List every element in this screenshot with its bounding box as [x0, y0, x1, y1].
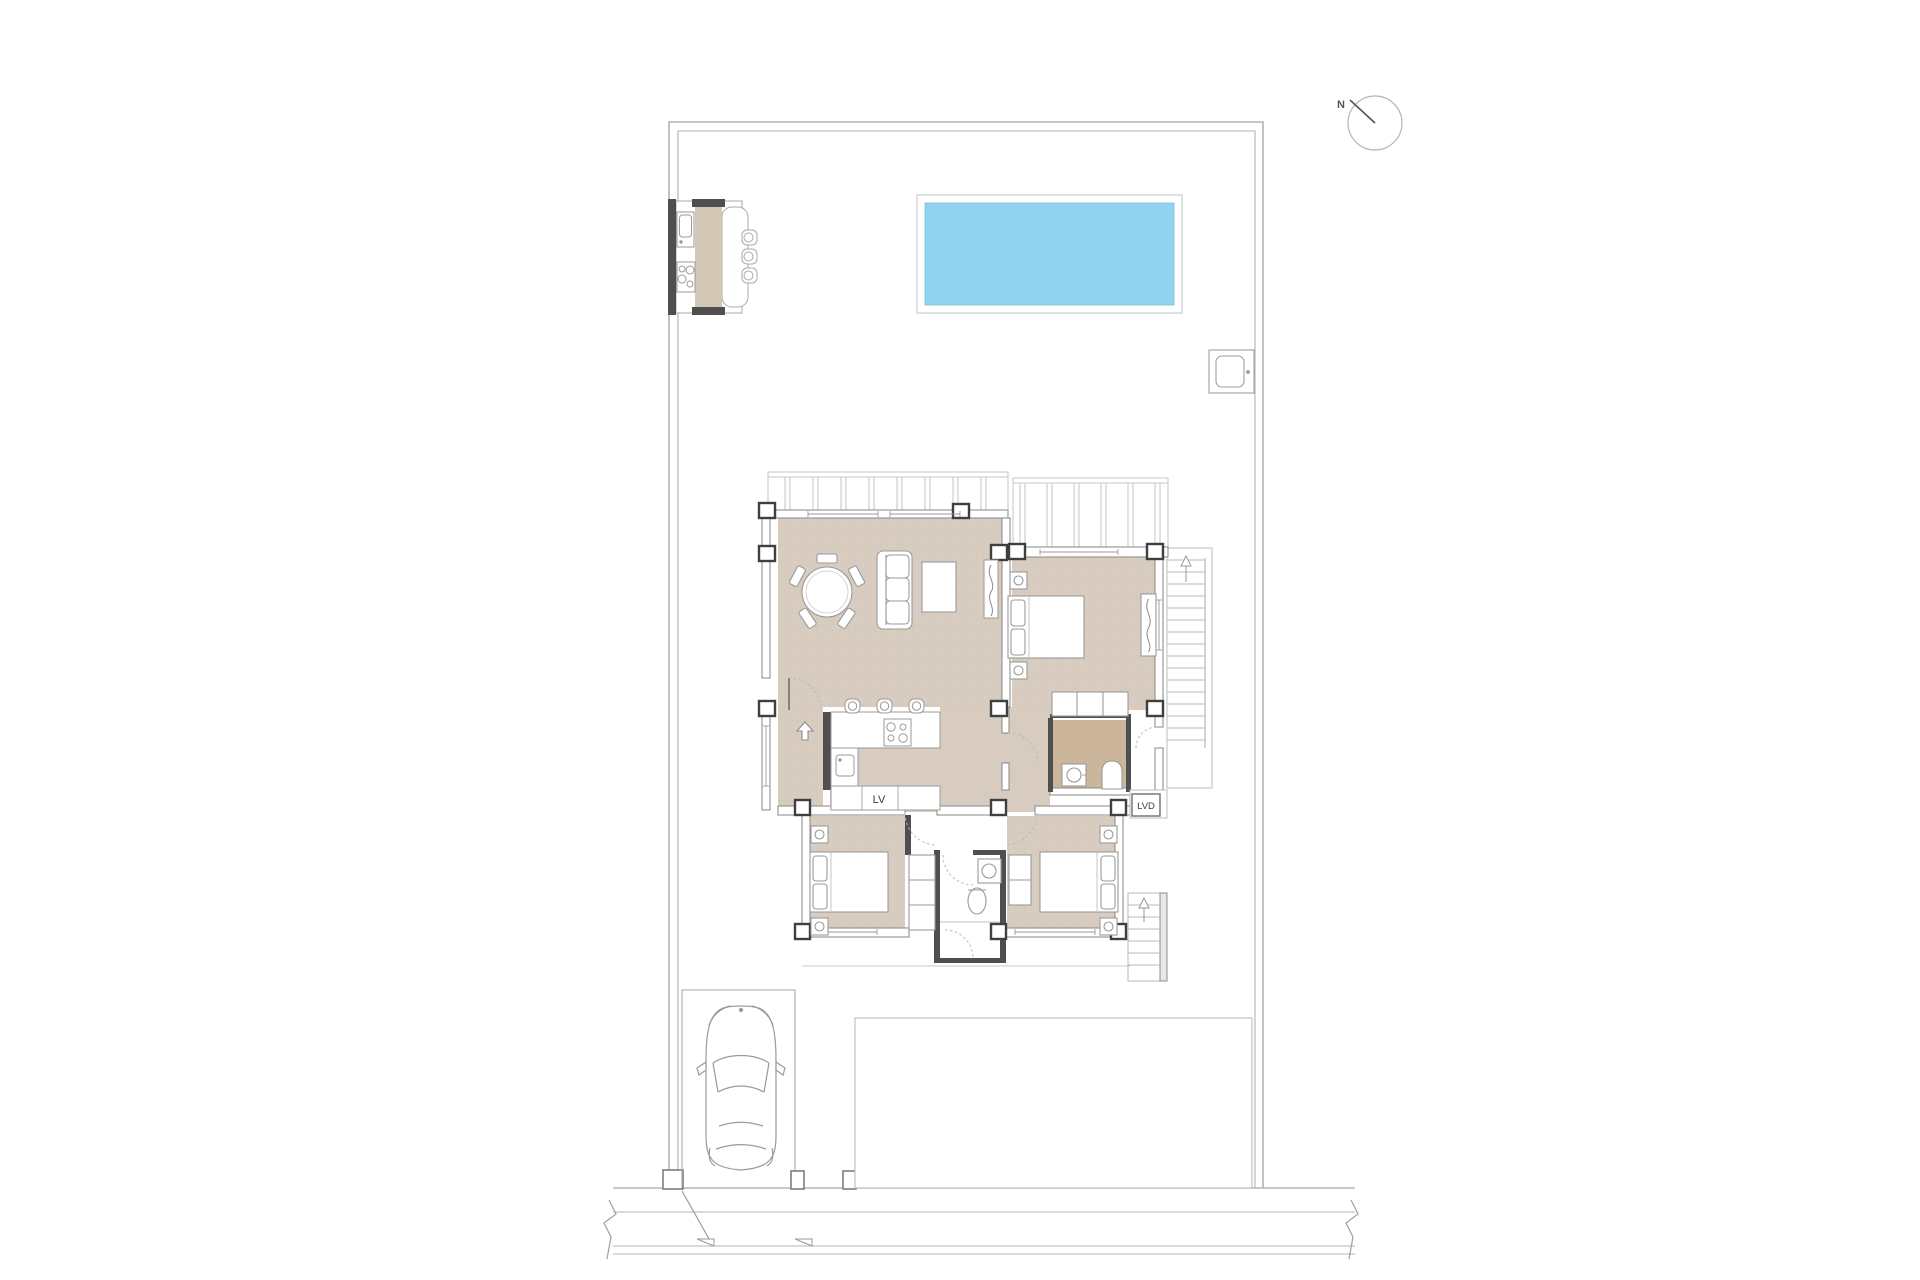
bar-stools — [742, 230, 757, 283]
stairs-upper — [1167, 548, 1212, 788]
bedroom-3-wardrobe — [1009, 855, 1031, 905]
gate-posts — [663, 1170, 856, 1189]
stairs-lower — [1128, 893, 1167, 981]
toilet-icon — [968, 888, 986, 914]
floor-plan-svg: N — [0, 0, 1920, 1280]
lamp-icon — [1014, 576, 1023, 585]
kitchen-counter-bottom — [831, 786, 940, 810]
bedroom-2-wardrobe — [909, 855, 935, 930]
street-lines — [613, 1188, 1355, 1254]
sofa — [877, 551, 912, 629]
compass: N — [1337, 96, 1402, 150]
bathroom-2-door-arc — [943, 855, 973, 885]
master-wardrobe — [1141, 594, 1156, 656]
laundry-nook: LVD — [1130, 790, 1167, 818]
closet-row — [1052, 692, 1128, 716]
bathroom-2 — [940, 859, 1001, 922]
car-top-view-icon — [697, 1006, 785, 1170]
outdoor-sink-icon — [677, 212, 694, 247]
lamp-icon — [1104, 830, 1113, 839]
laundry-label: LVD — [1137, 801, 1155, 812]
floor-plan-page: N — [0, 0, 1920, 1280]
pool — [917, 195, 1182, 313]
pergola-bedroom — [1013, 478, 1168, 548]
driveway-gate-line — [682, 1191, 812, 1246]
ensuite-exterior-door-arc — [1136, 727, 1157, 748]
lamp-icon — [1014, 666, 1023, 675]
cooktop-icon — [884, 719, 911, 746]
bar-counter — [695, 207, 722, 307]
lamp-icon — [1104, 922, 1113, 931]
pergola-living — [768, 472, 1008, 514]
break-mark-right-icon — [1346, 1200, 1358, 1259]
patio-terrace — [855, 1018, 1252, 1188]
lamp-icon — [815, 922, 824, 931]
lamp-icon — [815, 830, 824, 839]
ac-unit-icon — [1209, 350, 1254, 393]
kitchen-sink-icon — [836, 755, 854, 776]
kitchen-stools — [845, 699, 924, 713]
living-wardrobe — [984, 560, 998, 618]
break-mark-left-icon — [604, 1200, 616, 1259]
dishwasher-label: LV — [873, 794, 886, 806]
pool-water — [925, 203, 1174, 305]
dining-table — [802, 567, 852, 617]
coffee-table — [922, 562, 956, 612]
dining-chair — [817, 554, 837, 563]
toilet-icon — [1102, 761, 1122, 789]
shower-door-arc — [945, 930, 973, 958]
north-label: N — [1337, 99, 1345, 111]
bbq-wall — [668, 199, 676, 315]
outdoor-cooktop-icon — [677, 262, 695, 292]
outdoor-kitchen — [668, 199, 757, 315]
